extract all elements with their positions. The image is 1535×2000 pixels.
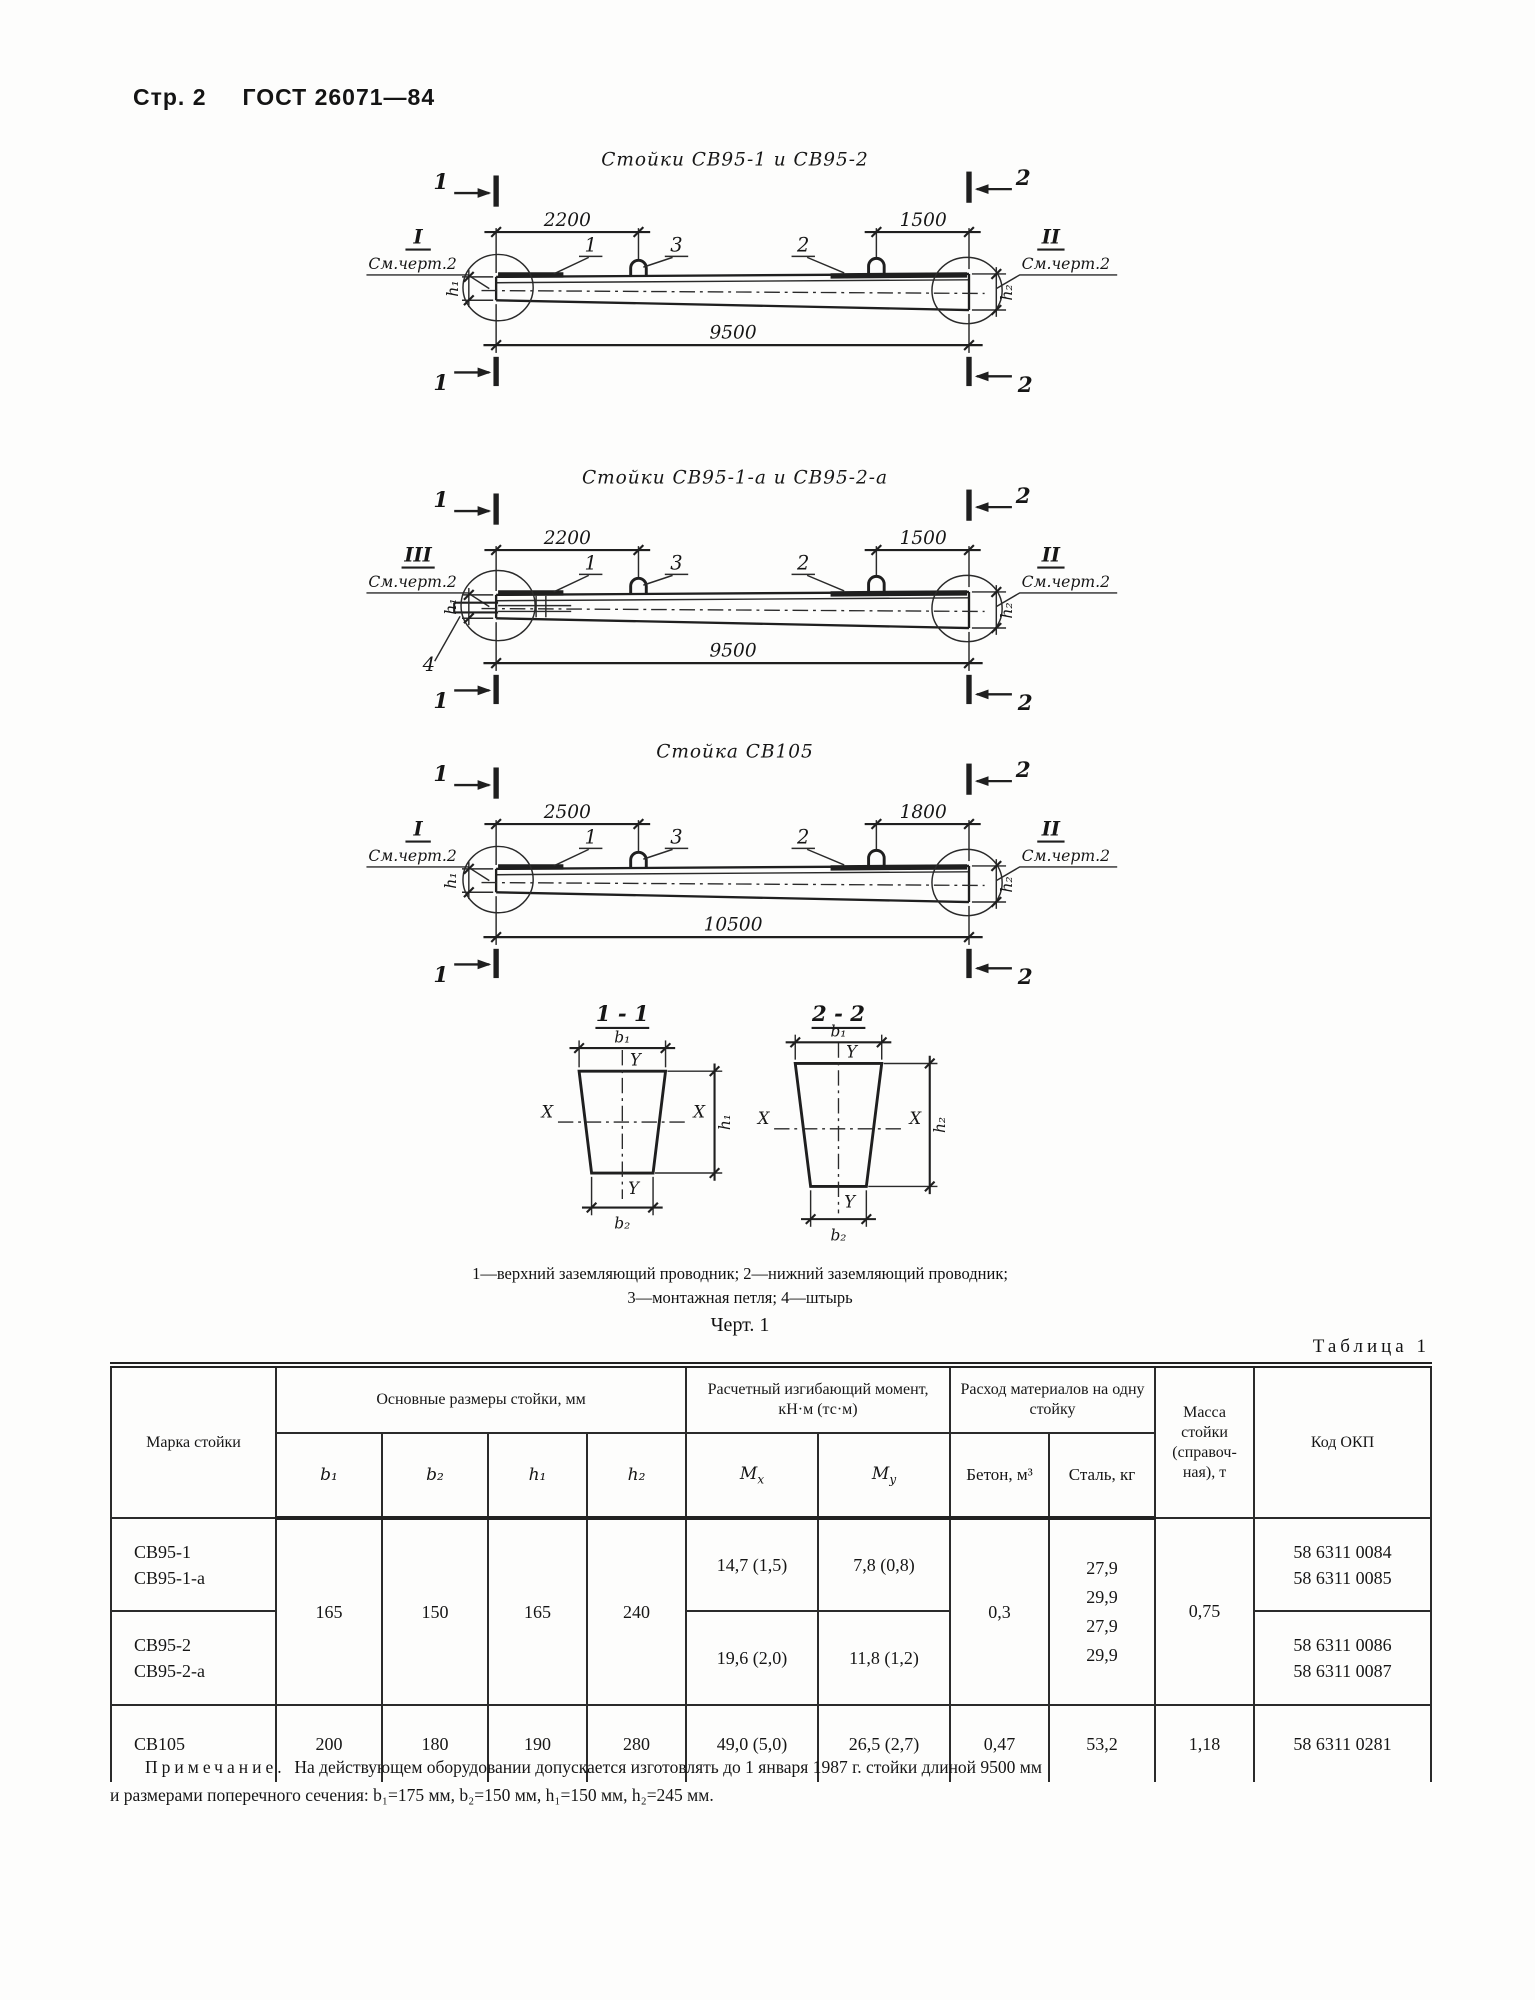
table-row: СВ95-1 СВ95-1-а 165 150 165 240 14,7 (1,… [111, 1518, 1431, 1611]
cell-my: 7,8 (0,8) [818, 1518, 950, 1611]
svg-text:2: 2 [796, 552, 809, 575]
dimension-total: 9500 [483, 304, 982, 353]
dimension-lines-top: 2200 1500 [484, 528, 980, 591]
dim-1500: 1500 [900, 210, 947, 231]
lifting-loop-right [869, 258, 885, 275]
svg-text:X: X [691, 1102, 706, 1121]
detail-labels: I См.черт.2 II См.черт.2 [366, 818, 1117, 881]
svg-text:2500: 2500 [543, 802, 591, 823]
dim-b2: b₂ [614, 1215, 630, 1233]
svg-text:1: 1 [433, 963, 448, 986]
page-number: Стр. 2 [133, 84, 207, 111]
cross-sections: 1 - 1 Y Y X X b₁ b₂ h₁ 2 - 2 [478, 1002, 978, 1271]
table-caption: Таблица 1 [1050, 1336, 1430, 1358]
svg-text:10500: 10500 [704, 914, 763, 935]
svg-text:Y: Y [846, 1043, 859, 1062]
svg-text:1: 1 [433, 488, 448, 513]
figure-sv95-elevation: Стойки СВ95-1 и СВ95-2 1 2 2200 1500 I С… [345, 150, 1125, 394]
callout-3: 3 [670, 234, 682, 257]
detail-labels: I См.черт.2 II См.черт.2 [366, 226, 1117, 289]
section-1-1: 1 - 1 Y Y X X b₁ b₂ h₁ [540, 1002, 734, 1233]
svg-text:3: 3 [670, 552, 682, 575]
svg-text:2: 2 [1017, 691, 1033, 712]
cut-label-2: 2 [1015, 166, 1031, 191]
detail-circle-left [463, 254, 533, 320]
cell-okp: 58 6311 0086 58 6311 0087 [1254, 1611, 1431, 1705]
figure-legend: 1—верхний заземляющий проводник; 2—нижни… [300, 1262, 1180, 1310]
cell-b1: 165 [276, 1518, 382, 1705]
figure-sv95a-elevation: Стойки СВ95-1-а и СВ95-2-а 1 2 2200 1500… [345, 468, 1125, 712]
section-cut-marks-bottom: 1 2 [433, 357, 1032, 394]
svg-text:3: 3 [670, 826, 682, 849]
lifting-loop-left [631, 260, 647, 277]
svg-text:См.черт.2: См.черт.2 [368, 573, 456, 591]
header-materials-group: Расход материалов на одну стойку [950, 1365, 1155, 1433]
detail-roman-right: II [1041, 226, 1061, 249]
dim-9500: 9500 [709, 322, 756, 343]
figure-sv105-elevation: Стойка СВ105 1 2 2500 1800 I См.черт.2 I… [345, 742, 1125, 986]
section-2-2: 2 - 2 Y Y X X b₁ b₂ h₂ [756, 1002, 949, 1244]
header-b1: b₁ [276, 1433, 382, 1518]
svg-text:1: 1 [433, 689, 448, 712]
post-body [454, 571, 1002, 642]
svg-text:9500: 9500 [709, 640, 756, 661]
svg-text:1500: 1500 [900, 528, 947, 549]
dim-h1: h₁ [444, 280, 462, 296]
callout-4: 4 [422, 653, 435, 676]
svg-text:h₂: h₂ [998, 602, 1016, 618]
figure-title: Стойки СВ95-1-а и СВ95-2-а [582, 468, 888, 489]
header-moment-group: Расчетный изгибающий момент, кН·м (тс·м) [686, 1365, 950, 1433]
svg-text:III: III [403, 544, 432, 567]
legend-line-1: 1—верхний заземляющий проводник; 2—нижни… [300, 1262, 1180, 1286]
dim-2200: 2200 [543, 210, 591, 231]
svg-text:1: 1 [584, 826, 596, 849]
lower-ground-conductor [831, 275, 968, 276]
see-drawing-note-right: См.черт.2 [1022, 255, 1110, 273]
header-steel: Сталь, кг [1049, 1433, 1155, 1518]
dim-b2: b₂ [830, 1226, 846, 1244]
footnote: Примечание. На действующем оборудовании … [110, 1753, 1442, 1809]
header-my: My [818, 1433, 950, 1518]
cell-mark: СВ95-2 СВ95-2-а [111, 1611, 276, 1705]
detail-roman-left: I [413, 226, 424, 249]
figure-title: Стойка СВ105 [656, 742, 814, 763]
callout-1: 1 [584, 234, 596, 257]
cell-h2: 240 [587, 1518, 686, 1705]
svg-text:Y: Y [844, 1193, 857, 1212]
svg-text:См.черт.2: См.черт.2 [1022, 847, 1110, 865]
dim-b1: b₁ [614, 1028, 630, 1046]
svg-text:X: X [908, 1109, 923, 1128]
svg-text:Y: Y [630, 1050, 643, 1069]
svg-text:1: 1 [433, 371, 448, 394]
svg-text:Y: Y [628, 1179, 641, 1198]
see-drawing-note-left: См.черт.2 [368, 255, 456, 273]
dim-h2: h₂ [998, 284, 1016, 300]
section-cut-marks-top: 1 2 [433, 484, 1030, 524]
cell-h1: 165 [488, 1518, 587, 1705]
section-cut-marks-top: 1 2 [433, 758, 1030, 798]
cell-mass: 0,75 [1155, 1518, 1254, 1705]
svg-text:2: 2 [1017, 965, 1033, 986]
svg-text:1: 1 [584, 552, 596, 575]
svg-text:2: 2 [1015, 758, 1031, 783]
svg-text:См.черт.2: См.черт.2 [368, 847, 456, 865]
svg-text:2: 2 [796, 826, 809, 849]
svg-text:II: II [1041, 818, 1061, 841]
page-header: Стр. 2 ГОСТ 26071—84 [133, 84, 435, 111]
svg-text:1800: 1800 [900, 802, 947, 823]
figure-title: Стойки СВ95-1 и СВ95-2 [601, 150, 869, 171]
cell-mx: 14,7 (1,5) [686, 1518, 818, 1611]
svg-text:2: 2 [1017, 373, 1033, 394]
callouts: 1 3 2 [554, 234, 845, 274]
document-number: ГОСТ 26071—84 [243, 84, 436, 111]
dimension-lines-top: 2500 1800 [484, 802, 980, 865]
dimension-total: 10500 [483, 896, 982, 945]
cell-steel: 27,9 29,9 27,9 29,9 [1049, 1518, 1155, 1705]
header-okp-code: Код ОКП [1254, 1365, 1431, 1518]
spec-table-wrap: Марка стойки Основные размеры стойки, мм… [110, 1362, 1432, 1782]
header-mark: Марка стойки [111, 1365, 276, 1518]
svg-text:X: X [756, 1109, 771, 1128]
svg-text:h₂: h₂ [998, 876, 1016, 892]
dim-b1: b₁ [830, 1023, 846, 1041]
svg-text:X: X [540, 1102, 555, 1121]
svg-text:h₁: h₁ [442, 598, 460, 614]
dim-h2: h₂ [931, 1117, 949, 1133]
spec-table: Марка стойки Основные размеры стойки, мм… [110, 1362, 1432, 1782]
header-mass: Масса стойки (справоч- ная), т [1155, 1365, 1254, 1518]
note-text-2: и размерами поперечного сечения: b₁=175 … [110, 1785, 714, 1805]
svg-text:I: I [413, 818, 424, 841]
cell-mark: СВ95-1 СВ95-1-а [111, 1518, 276, 1611]
cell-mx: 19,6 (2,0) [686, 1611, 818, 1705]
svg-text:2200: 2200 [543, 528, 591, 549]
svg-text:h₁: h₁ [442, 872, 460, 888]
post-body [463, 254, 1002, 323]
svg-text:1: 1 [433, 762, 448, 787]
svg-text:2: 2 [1015, 484, 1031, 509]
section-cut-marks-top: 1 2 [433, 166, 1030, 206]
header-concrete: Бетон, м³ [950, 1433, 1049, 1518]
note-label: Примечание. [145, 1757, 286, 1777]
cell-b2: 150 [382, 1518, 488, 1705]
header-h1: h₁ [488, 1433, 587, 1518]
svg-text:II: II [1041, 544, 1061, 567]
scanned-gost-page: Стр. 2 ГОСТ 26071—84 Стойки СВ95-1 и СВ9… [0, 0, 1535, 2000]
callouts: 1 3 2 [554, 826, 845, 866]
section-title: 1 - 1 [596, 1002, 649, 1026]
cell-my: 11,8 (1,2) [818, 1611, 950, 1705]
note-text-1: На действующем оборудовании допускается … [294, 1757, 1042, 1777]
cut-label-1: 1 [433, 170, 448, 195]
cell-okp: 58 6311 0084 58 6311 0085 [1254, 1518, 1431, 1611]
post-body [463, 846, 1002, 915]
cell-concrete: 0,3 [950, 1518, 1049, 1705]
section-cut-marks-bottom: 1 2 [433, 949, 1032, 986]
header-dimensions-group: Основные размеры стойки, мм [276, 1365, 686, 1433]
dim-h1: h₁ [716, 1114, 734, 1130]
dimension-total: 9500 [483, 622, 982, 671]
header-mx: Mx [686, 1433, 818, 1518]
section-cut-marks-bottom: 1 2 [433, 675, 1032, 712]
legend-line-2: 3—монтажная петля; 4—штырь [300, 1286, 1180, 1310]
dimension-lines-top: 2200 1500 [484, 210, 980, 273]
callouts: 1 3 2 4 [422, 552, 845, 676]
header-h2: h₂ [587, 1433, 686, 1518]
svg-text:См.черт.2: См.черт.2 [1022, 573, 1110, 591]
header-b2: b₂ [382, 1433, 488, 1518]
figure-caption: Черт. 1 [300, 1314, 1180, 1337]
callout-2: 2 [796, 234, 809, 257]
